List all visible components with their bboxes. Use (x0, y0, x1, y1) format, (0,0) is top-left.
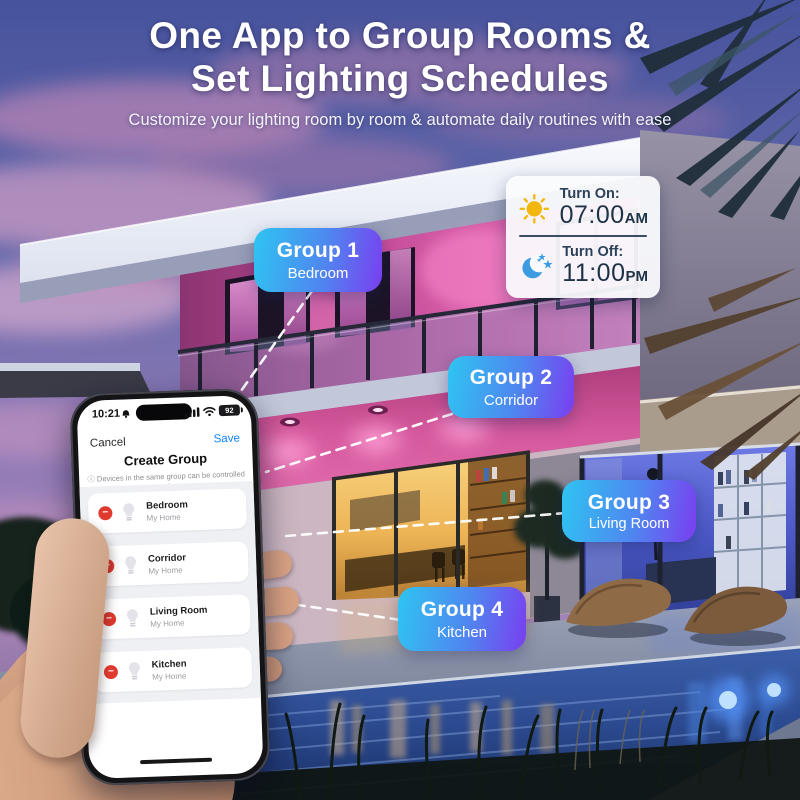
title-line-2: Set Lighting Schedules (0, 57, 800, 100)
save-button[interactable]: Save (213, 432, 240, 445)
device-row-kitchen[interactable]: − Kitchen My Home (93, 647, 252, 692)
device-home: My Home (148, 565, 186, 575)
turn-on-row: Turn On: 07:00AM (518, 186, 648, 228)
remove-device-button[interactable]: − (104, 665, 118, 679)
status-bar-time: 10:21 (92, 407, 131, 420)
bulb-icon (127, 661, 143, 682)
battery-indicator: 92 (219, 404, 240, 416)
subtitle: Customize your lighting room by room & a… (0, 111, 800, 130)
promo-graphic: One App to Group Rooms & Set Lighting Sc… (0, 0, 800, 800)
device-name: Living Room (150, 605, 208, 618)
group-badge-4-room: Kitchen (437, 625, 487, 640)
group-badge-3: Group 3 Living Room (562, 480, 696, 542)
headline: One App to Group Rooms & Set Lighting Sc… (0, 14, 800, 130)
group-badge-3-title: Group 3 (588, 491, 671, 514)
device-home: My Home (150, 618, 208, 629)
group-badge-4-title: Group 4 (421, 598, 504, 621)
status-bar-icons: 92 (185, 404, 240, 417)
device-name: Kitchen (152, 658, 187, 670)
turn-on-time: 07:00AM (560, 202, 648, 228)
turn-off-label: Turn Off: (562, 244, 648, 260)
cancel-button[interactable]: Cancel (90, 436, 126, 449)
cellular-icon (185, 406, 200, 417)
moon-stars-icon (518, 247, 553, 283)
group-badge-1-room: Bedroom (288, 266, 349, 281)
remove-device-button[interactable]: − (98, 506, 112, 520)
screen-title: Create Group (78, 449, 252, 470)
bell-icon (122, 409, 130, 418)
device-row-living-room[interactable]: − Living Room My Home (91, 594, 250, 639)
device-name: Bedroom (146, 499, 188, 511)
wifi-icon (203, 406, 216, 416)
sun-icon (518, 189, 551, 225)
group-badge-2: Group 2 Corridor (448, 356, 574, 418)
device-row-bedroom[interactable]: − Bedroom My Home (88, 488, 247, 533)
schedule-card: Turn On: 07:00AM Turn Off: 11:00PM (506, 176, 660, 298)
device-home: My Home (152, 671, 187, 681)
group-badge-2-room: Corridor (484, 393, 538, 408)
turn-on-label: Turn On: (560, 186, 648, 202)
group-badge-1-title: Group 1 (277, 239, 360, 262)
device-home: My Home (146, 512, 188, 522)
group-badge-2-title: Group 2 (470, 366, 553, 389)
device-list: − Bedroom My Home − (79, 481, 260, 704)
bulb-icon (123, 555, 139, 576)
info-icon: ⓘ (87, 475, 95, 484)
title-line-1: One App to Group Rooms & (0, 14, 800, 57)
device-name: Corridor (148, 552, 186, 564)
bulb-icon (125, 608, 141, 629)
bulb-icon (121, 502, 137, 523)
group-badge-1: Group 1 Bedroom (254, 228, 382, 292)
device-row-corridor[interactable]: − Corridor My Home (90, 541, 249, 586)
group-badge-4: Group 4 Kitchen (398, 587, 526, 651)
group-badge-3-room: Living Room (589, 517, 670, 532)
home-indicator[interactable] (140, 758, 212, 765)
turn-off-time: 11:00PM (562, 260, 648, 286)
turn-off-row: Turn Off: 11:00PM (518, 244, 648, 286)
schedule-divider (519, 235, 647, 237)
dynamic-island (136, 403, 193, 421)
